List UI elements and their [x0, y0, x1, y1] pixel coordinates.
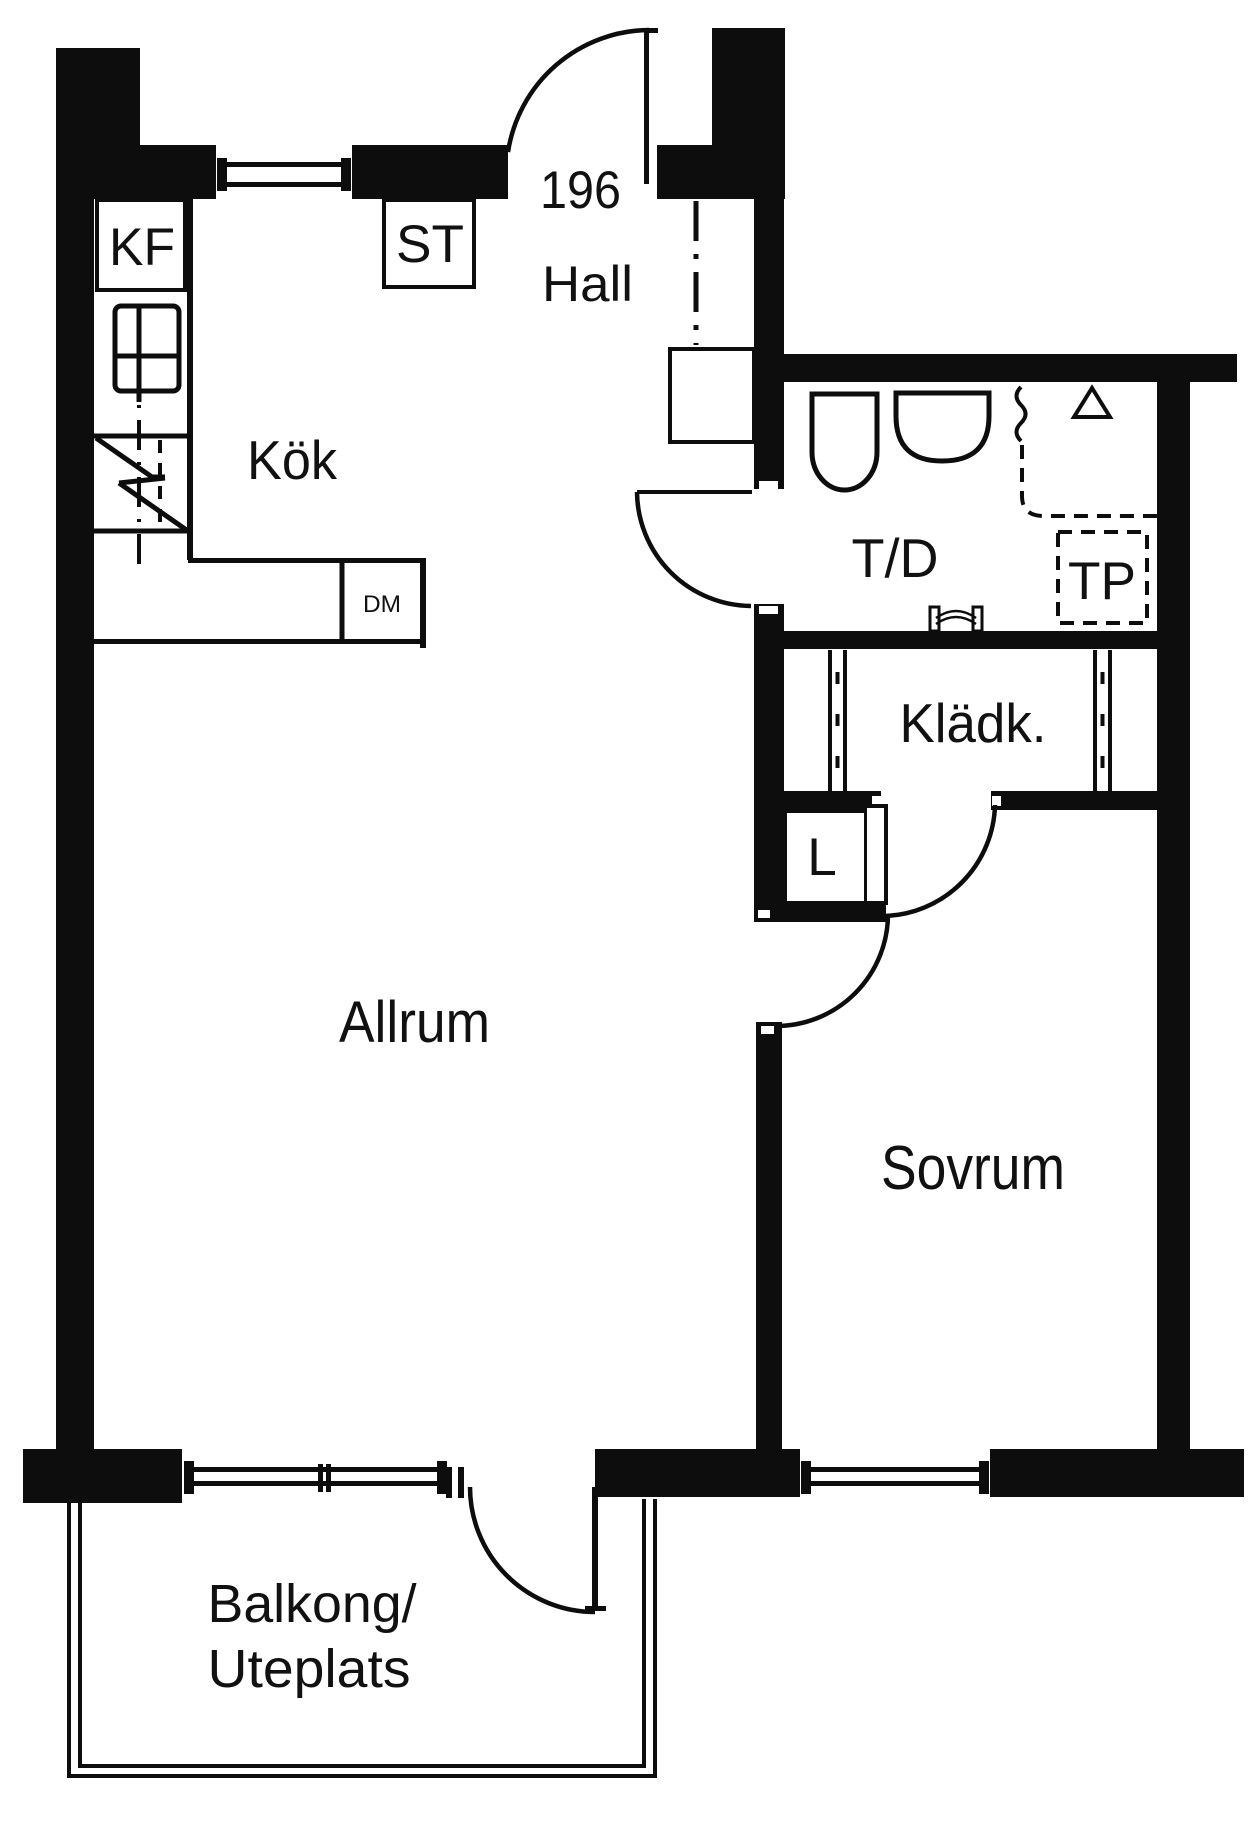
svg-text:Balkong/: Balkong/ — [208, 1574, 417, 1634]
svg-text:T/D: T/D — [852, 527, 939, 589]
svg-text:Klädk.: Klädk. — [900, 692, 1047, 754]
svg-text:ST: ST — [396, 215, 464, 274]
svg-text:TP: TP — [1068, 552, 1136, 611]
svg-text:KF: KF — [109, 218, 175, 277]
svg-text:Kök: Kök — [247, 429, 337, 491]
svg-text:Uteplats: Uteplats — [208, 1639, 411, 1699]
svg-text:Sovrum: Sovrum — [881, 1134, 1065, 1203]
svg-text:Hall: Hall — [542, 256, 633, 312]
svg-text:DM: DM — [363, 591, 401, 618]
svg-text:L: L — [807, 828, 836, 887]
svg-text:196: 196 — [540, 161, 621, 220]
svg-text:Allrum: Allrum — [339, 990, 490, 1055]
